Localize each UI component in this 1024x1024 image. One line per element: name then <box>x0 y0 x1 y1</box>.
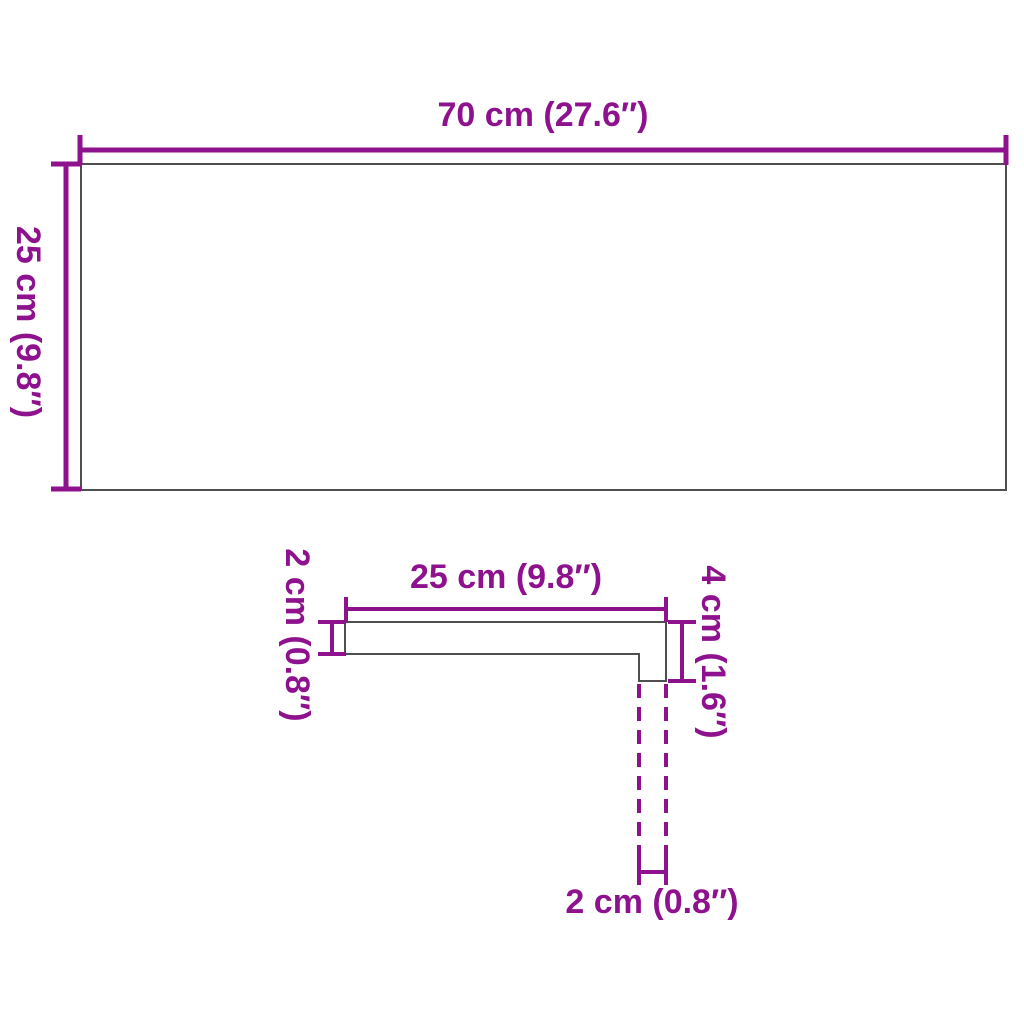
top-view <box>51 135 1006 490</box>
diagram-linework <box>0 0 1024 1024</box>
profile-outline <box>345 622 666 681</box>
profile-view <box>318 597 696 885</box>
dimension-diagram: 70 cm (27.6″) 25 cm (9.8″) 25 cm (9.8″) … <box>0 0 1024 1024</box>
top-view-width-label: 70 cm (27.6″) <box>438 97 649 133</box>
profile-total-height-label: 4 cm (1.6″) <box>695 565 731 738</box>
profile-width-label: 25 cm (9.8″) <box>410 559 602 595</box>
profile-nosing-width-label: 2 cm (0.8″) <box>565 884 738 920</box>
top-view-height-label: 25 cm (9.8″) <box>10 226 46 418</box>
profile-thickness-label: 2 cm (0.8″) <box>279 548 315 721</box>
board-outline <box>81 164 1006 490</box>
